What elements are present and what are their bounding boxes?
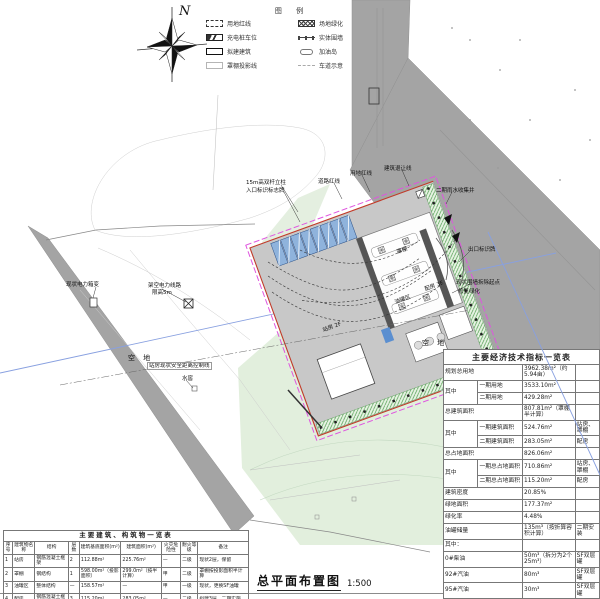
header-cell: 主要建筑、构筑物一览表 [4,531,249,542]
drawing-title: 总平面布置图 [257,572,341,591]
hatch-icon [298,20,315,27]
cell [575,365,599,381]
cell: 95#汽油 [444,583,523,599]
cell: 4.48% [523,512,576,524]
header-cell: 建筑物名称 [13,542,35,555]
data-table: 主要建筑、构筑物一览表序号建筑物名称结构层数建筑基底面积(m²)建筑面积(m²)… [3,530,249,599]
cell: 2 [4,568,13,582]
cell: 油罐储量 [444,524,523,540]
header-cell: 主要经济技术指标一览表 [444,350,600,365]
header-cell: 层数 [68,542,79,555]
legend-item: 实体围墙 [298,33,378,42]
cell: 0#柴油 [444,551,523,567]
cell: 283.05m² [523,436,576,448]
cell: SF双层罐 [575,567,599,583]
cell: SF双层罐 [575,583,599,599]
cell: 总占地面积 [444,448,523,460]
legend-label: 罩棚投影线 [227,61,257,70]
cell: 罩棚 [13,568,35,582]
cell: 807.81m²（罩棚半计算） [523,404,576,420]
legend-column: 场地绿化实体围墙加油岛车道示意 [298,19,378,70]
cell: 总建筑面积 [444,404,523,420]
cell: 现状，更换SF油罐 [198,581,249,593]
cell: 135m³（按折算容积计算） [523,524,576,540]
cell: 其中 [444,420,478,448]
cell: 92#汽油 [444,567,523,583]
cell: 二期安装 [575,524,599,540]
cell: 绿地面积 [444,500,523,512]
cell: 拟建3层，二期实施 [198,593,249,599]
cell: 3962.38m²（约5.94亩） [523,365,576,381]
cell: 站房、罩棚 [575,460,599,476]
dashed-rect-icon [206,20,223,27]
legend-label: 实体围墙 [319,33,343,42]
light-rect-icon [206,62,223,69]
cell [575,404,599,420]
cell: 现状2层，保留 [198,554,249,568]
cell: 一期总占地面积 [478,460,523,476]
cell: 158.57m² [79,581,121,593]
cell: 429.28m² [523,392,576,404]
cell: 配房 [575,476,599,488]
cell: 115.20m² [523,476,576,488]
legend-label: 场地绿化 [319,19,343,28]
cell: — [161,554,180,568]
cell: 钢筋混凝土框架 [35,593,68,599]
cell: 一级 [181,581,198,593]
cell: — [121,581,161,593]
legend-label: 用地红线 [227,19,251,28]
header-cell: 耐火等级 [181,542,198,555]
econ-table: 主要经济技术指标一览表规划总用地3962.38m²（约5.94亩）其中一期用地3… [443,349,600,599]
legend-label: 加油岛 [319,47,337,56]
cell: 598.00m²（投影面积） [79,568,121,582]
legend-item: 场地绿化 [298,19,378,28]
cell: 2 [68,554,79,568]
legend-items: 用地红线充电桩车位拟建建筑罩棚投影线场地绿化实体围墙加油岛车道示意 [206,19,378,70]
cell: 30m³ [523,583,576,599]
cell: 710.86m² [523,460,576,476]
cell [523,539,576,551]
island-icon [300,49,313,55]
legend: 图 例 用地红线充电桩车位拟建建筑罩棚投影线场地绿化实体围墙加油岛车道示意 [206,6,378,70]
cell: 1 [68,568,79,582]
cell: 站房、罩棚 [575,420,599,436]
transformer-box-icon [90,298,97,307]
legend-title: 图 例 [206,6,378,16]
cell: 配房 [575,436,599,448]
legend-item: 罩棚投影线 [206,61,286,70]
header-cell: 建筑面积(m²) [121,542,161,555]
cell: — [68,581,79,593]
cell: 3 [68,593,79,599]
legend-item: 车道示意 [298,61,378,70]
cell: 二期用地 [478,392,523,404]
cell [575,488,599,500]
cell: 20.85% [523,488,576,500]
cell: 50m³（拆分为2个25m³） [523,551,576,567]
cell: 299.0m²（按半计算） [121,568,161,582]
cell: 其中 [444,460,478,488]
header-cell: 序号 [4,542,13,555]
cell: 钢结构 [35,568,68,582]
cell: 其中： [444,539,523,551]
legend-label: 车道示意 [319,61,343,70]
legend-item: 用地红线 [206,19,286,28]
header-cell: 备注 [198,542,249,555]
cell: 524.76m² [523,420,576,436]
cell: 建筑密度 [444,488,523,500]
cell: 3 [4,581,13,593]
cell [575,500,599,512]
cell: 二期建筑面积 [478,436,523,448]
cell: 3533.10m² [523,380,576,392]
north-arrow: N [135,4,215,88]
north-label: N [179,4,190,19]
cell: SF双层罐 [575,551,599,567]
legend-item: 拟建建筑 [206,47,286,56]
cell: 甲 [161,568,180,582]
cell: 配房 [13,593,35,599]
drawing-scale: 1:500 [347,579,372,591]
cell: 80m³ [523,567,576,583]
cell: 1 [4,554,13,568]
bold-rect-icon [206,48,223,55]
cell [575,380,599,392]
cell [575,539,599,551]
cell: 112.88m² [79,554,121,568]
site-plan-sheet: N 图 例 用地红线充电桩车位拟建建筑罩棚投影线场地绿化实体围墙加油岛车道示意 … [0,0,600,599]
cell: 其中 [444,380,478,404]
fence-line-icon [298,36,315,40]
data-table: 主要经济技术指标一览表规划总用地3962.38m²（约5.94亩）其中一期用地3… [443,349,600,599]
cell: 二级 [181,554,198,568]
header-cell: 建筑基底面积(m²) [79,542,121,555]
cell: 一期建筑面积 [478,420,523,436]
cell: 225.76m² [121,554,161,568]
bldg-table: 主要建筑、构筑物一览表序号建筑物名称结构层数建筑基底面积(m²)建筑面积(m²)… [3,530,249,599]
cell: 整体结构 [35,581,68,593]
ev-stall-icon [206,34,223,41]
legend-label: 充电桩车位 [227,33,257,42]
cell: 二级 [181,593,198,599]
cell: — [161,593,180,599]
cell: 二期总占地面积 [478,476,523,488]
cell: 站房 [13,554,35,568]
title-block: 总平面布置图 1:500 [257,572,372,591]
legend-item: 加油岛 [298,47,378,56]
legend-column: 用地红线充电桩车位拟建建筑罩棚投影线 [206,19,286,70]
legend-item: 充电桩车位 [206,33,286,42]
cell: 283.05m² [121,593,161,599]
cell: 一期用地 [478,380,523,392]
cell: 甲 [161,581,180,593]
cell [575,392,599,404]
header-cell: 结构 [35,542,68,555]
cell: 规划总用地 [444,365,523,381]
power-pole-icon [184,299,193,308]
cell [575,448,599,460]
legend-label: 拟建建筑 [227,47,251,56]
cell: 4 [4,593,13,599]
compass-icon [135,4,215,88]
cell [575,512,599,524]
cell: 钢筋混凝土框架 [35,554,68,568]
cell: 罩棚按投影面积半计算 [198,568,249,582]
cell: 115.20m² [79,593,121,599]
cell: 绿化率 [444,512,523,524]
cell: 177.37m² [523,500,576,512]
dashed-line-icon [298,65,315,66]
header-cell: 火灾危险性 [161,542,180,555]
water-cellar-icon [192,386,197,391]
cell: 826.06m² [523,448,576,460]
cell: 油罐区 [13,581,35,593]
cell: 二级 [181,568,198,582]
